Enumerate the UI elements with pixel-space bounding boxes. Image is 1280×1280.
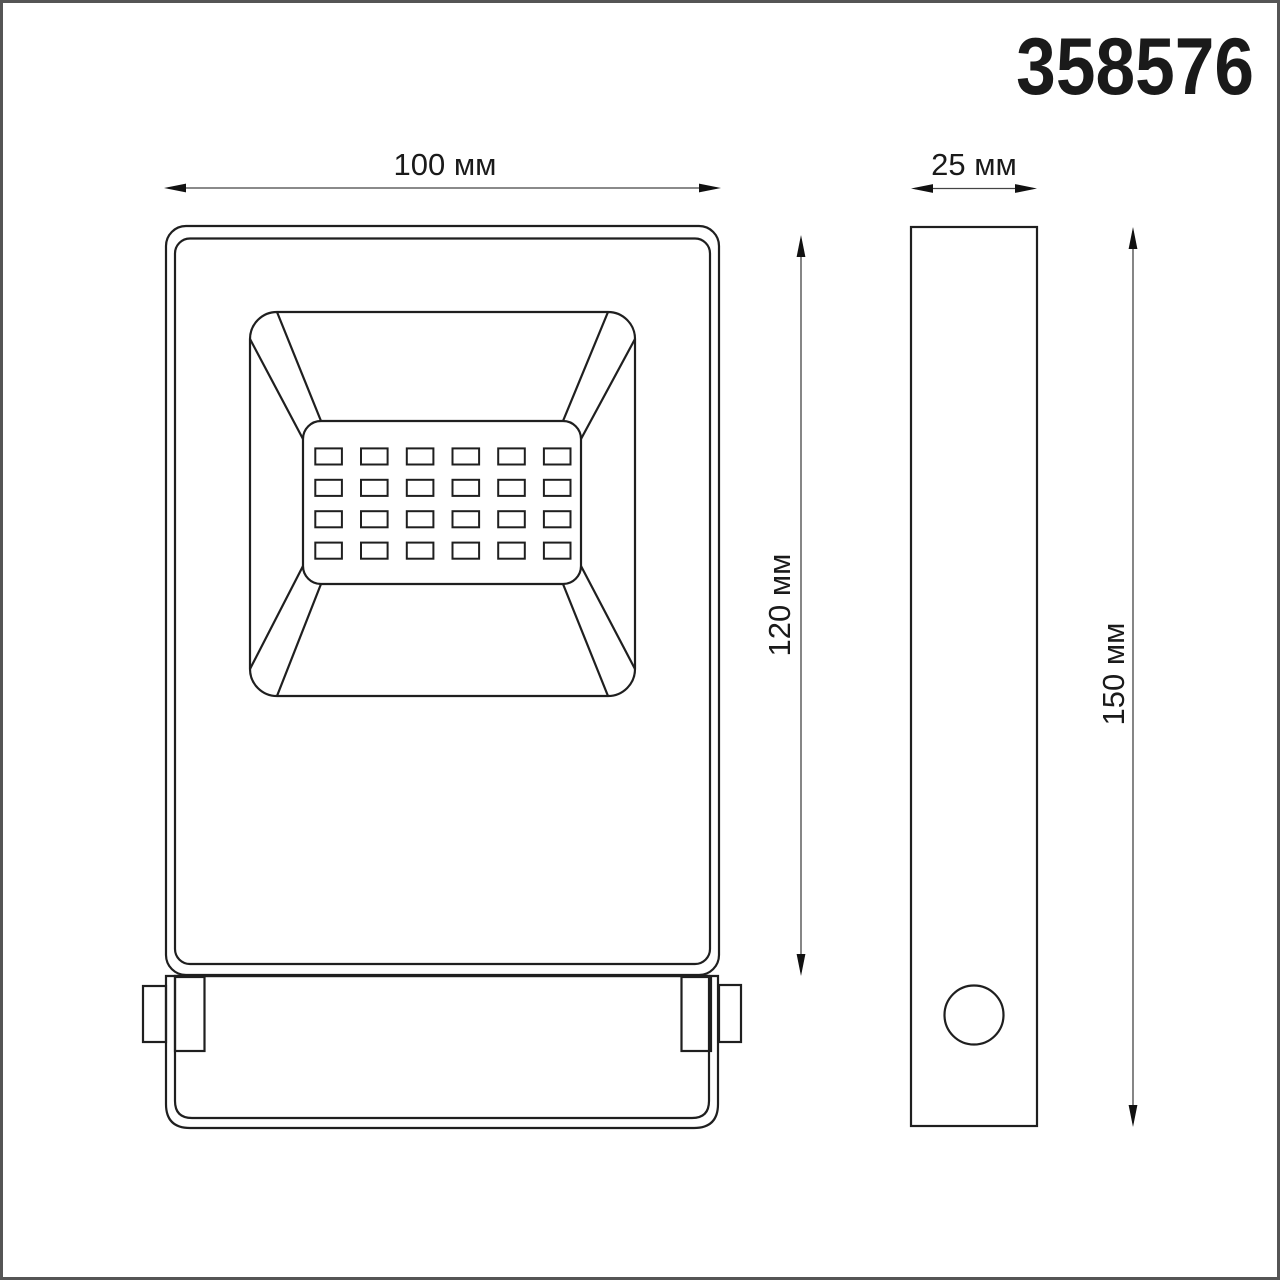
- svg-text:120 мм: 120 мм: [762, 554, 797, 657]
- svg-text:358576: 358576: [1016, 22, 1254, 112]
- svg-text:25 мм: 25 мм: [931, 147, 1017, 182]
- svg-text:150 мм: 150 мм: [1096, 623, 1131, 726]
- svg-text:100 мм: 100 мм: [394, 147, 497, 182]
